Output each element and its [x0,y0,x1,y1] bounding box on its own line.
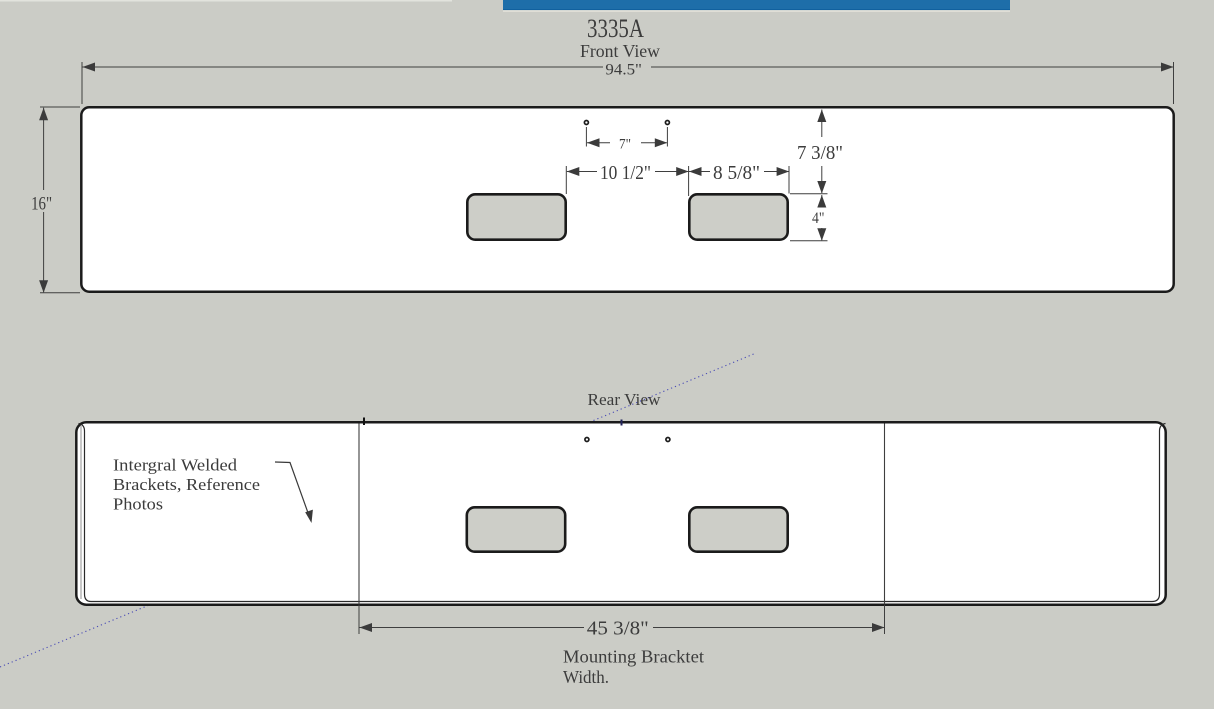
svg-text:Brackets, Reference: Brackets, Reference [113,475,260,494]
svg-text:3335A: 3335A [587,14,644,43]
svg-text:16": 16" [31,195,52,215]
svg-text:7 3/8": 7 3/8" [797,143,843,164]
svg-text:4": 4" [812,210,825,227]
svg-text:Intergral Welded: Intergral Welded [113,456,238,475]
svg-text:Front View: Front View [580,41,660,61]
svg-text:Width.: Width. [563,667,609,687]
svg-text:8 5/8": 8 5/8" [713,163,760,184]
svg-text:94.5": 94.5" [605,62,642,79]
svg-text:Photos: Photos [113,495,163,514]
svg-text:7": 7" [619,137,631,153]
svg-text:10 1/2": 10 1/2" [600,163,651,184]
svg-text:Rear View: Rear View [588,390,661,409]
svg-text:45 3/8": 45 3/8" [587,619,649,640]
svg-text:Mounting Bracktet: Mounting Bracktet [563,647,704,667]
